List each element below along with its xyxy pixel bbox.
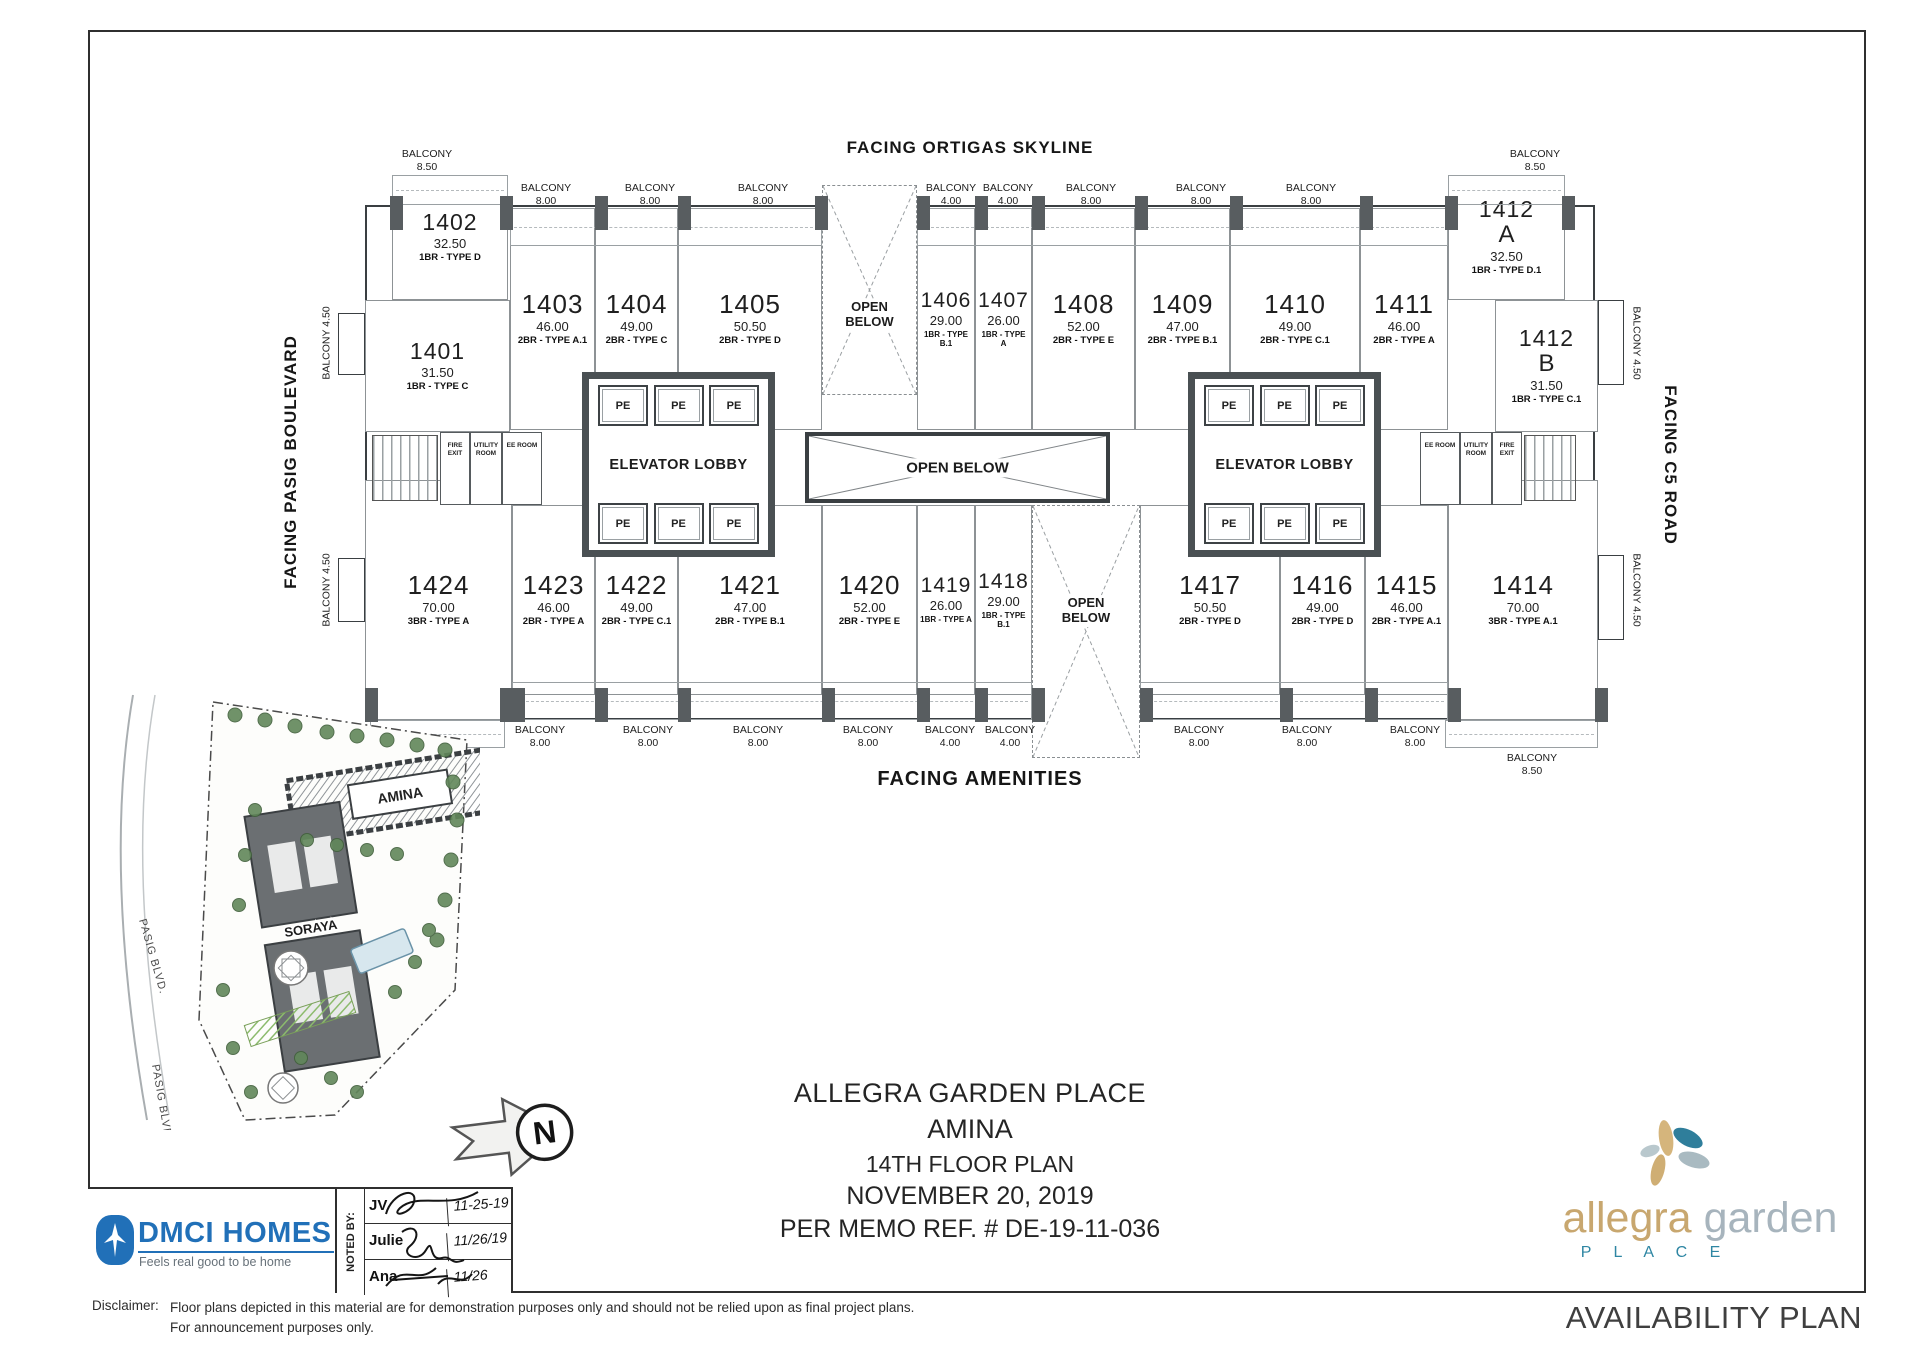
x-cross — [823, 186, 916, 394]
unit-area: 52.00 — [1067, 319, 1100, 334]
balcony-strip — [510, 208, 822, 246]
balcony-label: BALCONY8.00 — [606, 724, 690, 749]
balcony-text: BALCONY — [1066, 182, 1116, 194]
elevator-pe: PE — [654, 385, 704, 426]
unit-number: 1414 — [1492, 572, 1554, 598]
facing-label-bottom: FACING AMENITIES — [680, 768, 1280, 791]
memo-reference: PER MEMO REF. # DE-19-11-036 — [660, 1215, 1280, 1244]
elevator-pe: PE — [654, 503, 704, 544]
unit-number: 1411 — [1374, 291, 1434, 317]
unit-type: 1BR - TYPE A — [918, 615, 974, 624]
balcony-protrusion-right-2 — [1598, 555, 1624, 640]
balcony-label: BALCONY8.50 — [1490, 752, 1574, 777]
unit-number: 1401 — [410, 340, 465, 363]
balcony-protrusion-left-1 — [338, 313, 365, 375]
open-below-label: OPEN BELOW — [902, 458, 1013, 477]
balcony-value: 4.00 — [968, 737, 1052, 750]
signatory-date: 11/26/19 — [446, 1229, 512, 1261]
unit-number: 1417 — [1179, 572, 1241, 598]
balcony-label: BALCONY8.00 — [826, 724, 910, 749]
unit-number: 1415 — [1376, 572, 1438, 598]
balcony-label: BALCONY8.00 — [498, 724, 582, 749]
disclaimer-text: Floor plans depicted in this material ar… — [170, 1298, 1150, 1337]
unit-type: 3BR - TYPE A.1 — [1486, 617, 1559, 628]
brand-place: P L A C E — [1570, 1244, 1740, 1262]
x-cross — [1033, 506, 1139, 757]
balcony-text: BALCONY 4.50 — [1630, 553, 1642, 626]
balcony-strip — [917, 208, 1448, 246]
road-line — [143, 695, 169, 1115]
balcony-label: BALCONY 4.50 — [1630, 306, 1643, 379]
unit-type: 2BR - TYPE A — [521, 617, 586, 628]
signatory-date: 11/26 — [446, 1264, 512, 1296]
balcony-strip — [512, 682, 1032, 720]
balcony-value: 4.00 — [966, 195, 1050, 208]
unit-1418: 1418 29.00 1BR - TYPE B.1 — [975, 505, 1032, 695]
unit-number: 1424 — [408, 572, 470, 598]
unit-area: 47.00 — [1166, 319, 1199, 334]
plaza-circle — [268, 1073, 298, 1103]
balcony-label: BALCONY8.00 — [1265, 724, 1349, 749]
balcony-strip — [392, 175, 508, 205]
balcony-label: BALCONY 4.50 — [1630, 553, 1643, 626]
elevator-row: PE PE PE — [1204, 385, 1365, 426]
floor-plan-title: 14TH FLOOR PLAN — [660, 1151, 1280, 1178]
column-blocks-bottom — [500, 688, 513, 722]
balcony-strip — [1140, 682, 1448, 720]
disclaimer-line-1: Floor plans depicted in this material ar… — [170, 1298, 1150, 1318]
balcony-text: BALCONY — [983, 182, 1033, 194]
unit-1424: 1424 70.00 3BR - TYPE A — [365, 480, 512, 720]
brand-garden: garden — [1704, 1194, 1838, 1242]
dmci-logo-box: DMCI HOMES Feels real good to be home — [88, 1187, 337, 1293]
balcony-text: BALCONY — [1507, 752, 1557, 764]
balcony-label: BALCONY8.00 — [1373, 724, 1457, 749]
balcony-text: BALCONY — [733, 724, 783, 736]
balcony-value: 8.00 — [1159, 195, 1243, 208]
title-block-text: ALLEGRA GARDEN PLACE AMINA 14TH FLOOR PL… — [660, 1078, 1280, 1244]
road-label-2: PASIG BLVD. — [149, 1063, 174, 1130]
plaza-circle — [274, 951, 308, 985]
project-name: ALLEGRA GARDEN PLACE — [660, 1078, 1280, 1109]
balcony-label: BALCONY8.00 — [1049, 182, 1133, 207]
balcony-label: BALCONY8.00 — [504, 182, 588, 207]
unit-area: 49.00 — [1279, 319, 1312, 334]
unit-area: 29.00 — [930, 313, 963, 328]
unit-1401: 1401 31.50 1BR - TYPE C — [365, 300, 510, 432]
unit-1419: 1419 26.00 1BR - TYPE A — [917, 505, 975, 695]
brand-allegra: allegra — [1563, 1194, 1692, 1242]
balcony-label: BALCONY8.00 — [1159, 182, 1243, 207]
availability-plan-title: AVAILABILITY PLAN — [1566, 1300, 1862, 1336]
unit-number: 1402 — [422, 211, 477, 234]
balcony-label: BALCONY8.00 — [1269, 182, 1353, 207]
unit-area: 70.00 — [422, 600, 455, 615]
north-arrow: N — [441, 1060, 587, 1197]
open-below-top: OPEN BELOW — [822, 185, 917, 395]
balcony-text: BALCONY — [1510, 148, 1560, 160]
dmci-wordmark: DMCI HOMES — [138, 1217, 332, 1250]
balcony-strip — [1445, 720, 1598, 748]
elevator-lobby-label: ELEVATOR LOBBY — [1215, 457, 1353, 473]
unit-area: 26.00 — [930, 598, 963, 613]
elevator-pe: PE — [1315, 503, 1365, 544]
unit-number: 1409 — [1152, 291, 1214, 317]
balcony-protrusion-left-2 — [338, 558, 365, 622]
unit-type: 2BR - TYPE B.1 — [1146, 336, 1220, 347]
elevator-row: PE PE PE — [1204, 503, 1365, 544]
brand-wordmark: allegra garden — [1545, 1194, 1855, 1243]
balcony-value: 8.50 — [1490, 765, 1574, 778]
elevator-pe: PE — [709, 503, 759, 544]
allegra-flower-icon — [1630, 1118, 1720, 1190]
balcony-text: BALCONY 4.50 — [321, 306, 333, 379]
unit-type: 2BR - TYPE A.1 — [516, 336, 589, 347]
disclaimer-label: Disclaimer: — [92, 1298, 159, 1313]
unit-type: 1BR - TYPE C.1 — [1510, 395, 1584, 406]
unit-area: 46.00 — [1388, 319, 1421, 334]
unit-1420: 1420 52.00 2BR - TYPE E — [822, 505, 917, 695]
unit-type: 2BR - TYPE E — [1051, 336, 1116, 347]
balcony-label: BALCONY8.00 — [721, 182, 805, 207]
signatory-name: Ana — [369, 1268, 397, 1285]
balcony-text: BALCONY 4.50 — [1630, 306, 1642, 379]
unit-number: 1421 — [719, 572, 781, 598]
unit-number: 1416 — [1292, 572, 1354, 598]
unit-area: 46.00 — [1390, 600, 1423, 615]
balcony-value: 8.50 — [1493, 161, 1577, 174]
elevator-lobby-right: PE PE PE ELEVATOR LOBBY PE PE PE — [1188, 372, 1381, 557]
stairs-right — [1524, 435, 1576, 501]
balcony-text: BALCONY — [402, 148, 452, 160]
petal-gold-bottom — [1648, 1153, 1668, 1187]
unit-number: 1420 — [839, 572, 901, 598]
utility-room-right: UTILITY ROOM — [1460, 432, 1492, 505]
balcony-value: 8.00 — [498, 737, 582, 750]
unit-number: 1412 — [1519, 327, 1574, 350]
unit-area: 49.00 — [1306, 600, 1339, 615]
facing-label-top: FACING ORTIGAS SKYLINE — [670, 138, 1270, 158]
balcony-label: BALCONY4.00 — [968, 724, 1052, 749]
balcony-protrusion-right-1 — [1598, 300, 1624, 385]
balcony-value: 8.00 — [1373, 737, 1457, 750]
balcony-value: 8.00 — [826, 737, 910, 750]
open-below-bottom: OPEN BELOW — [1032, 505, 1140, 758]
unit-suffix: A — [1498, 223, 1514, 247]
facing-label-left: FACING PASIG BOULEVARD — [281, 335, 301, 589]
signatory-row: JV 11-25-19 — [365, 1189, 513, 1224]
unit-number: 1407 — [978, 290, 1029, 311]
balcony-text: BALCONY — [515, 724, 565, 736]
elevator-lobby-label: ELEVATOR LOBBY — [609, 457, 747, 473]
jet-icon — [102, 1221, 128, 1259]
balcony-text: BALCONY — [985, 724, 1035, 736]
balcony-value: 8.00 — [716, 737, 800, 750]
balcony-text: BALCONY — [1282, 724, 1332, 736]
unit-number: 1422 — [606, 572, 668, 598]
dmci-tagline: Feels real good to be home — [139, 1255, 291, 1269]
balcony-label: BALCONY8.50 — [385, 148, 469, 173]
balcony-value: 8.00 — [608, 195, 692, 208]
balcony-label: BALCONY8.00 — [716, 724, 800, 749]
dmci-rule — [138, 1251, 334, 1253]
unit-area: 50.50 — [1194, 600, 1227, 615]
balcony-text: BALCONY — [1174, 724, 1224, 736]
balcony-value: 8.00 — [1269, 195, 1353, 208]
balcony-label: BALCONY8.00 — [608, 182, 692, 207]
unit-area: 31.50 — [421, 365, 454, 380]
balcony-text: BALCONY — [623, 724, 673, 736]
noted-by-column: NOTED BY: — [337, 1189, 365, 1295]
fire-exit-right: FIRE EXIT — [1492, 432, 1522, 505]
ee-room-left: EE ROOM — [502, 432, 542, 505]
unit-number: 1410 — [1264, 291, 1326, 317]
building-name: AMINA — [660, 1114, 1280, 1145]
dmci-logo-icon — [96, 1215, 134, 1265]
unit-area: 31.50 — [1530, 378, 1563, 393]
unit-type: 1BR - TYPE D.1 — [1470, 266, 1544, 277]
unit-number: 1404 — [606, 291, 668, 317]
unit-number: 1423 — [523, 572, 585, 598]
unit-type: 2BR - TYPE D — [1177, 617, 1243, 628]
unit-1412B: 1412 B 31.50 1BR - TYPE C.1 — [1495, 300, 1598, 432]
unit-type: 1BR - TYPE C — [405, 382, 471, 393]
elevator-pe: PE — [1260, 385, 1310, 426]
unit-type: 3BR - TYPE A — [406, 617, 471, 628]
unit-number: 1408 — [1053, 291, 1115, 317]
unit-suffix: B — [1538, 352, 1554, 376]
unit-type: 2BR - TYPE C.1 — [600, 617, 674, 628]
unit-area: 46.00 — [537, 600, 570, 615]
signatory-row: Ana 11/26 — [365, 1260, 513, 1295]
balcony-value: 8.50 — [385, 161, 469, 174]
petal-teal — [1670, 1123, 1706, 1152]
disclaimer-line-2: For announcement purposes only. — [170, 1318, 1150, 1338]
unit-number: 1418 — [978, 571, 1029, 592]
elevator-pe: PE — [1204, 385, 1254, 426]
unit-type: 2BR - TYPE A — [1371, 336, 1436, 347]
unit-area: 26.00 — [987, 313, 1020, 328]
unit-type: 2BR - TYPE C — [604, 336, 670, 347]
balcony-text: BALCONY — [625, 182, 675, 194]
unit-type: 1BR - TYPE D — [417, 253, 483, 264]
elevator-pe: PE — [1315, 385, 1365, 426]
unit-area: 32.50 — [1490, 249, 1523, 264]
balcony-text: BALCONY — [1176, 182, 1226, 194]
balcony-value: 8.00 — [606, 737, 690, 750]
unit-area: 49.00 — [620, 600, 653, 615]
balcony-value: 8.00 — [1049, 195, 1133, 208]
unit-number: 1419 — [921, 575, 972, 596]
unit-area: 29.00 — [987, 594, 1020, 609]
unit-area: 32.50 — [434, 236, 467, 251]
unit-area: 46.00 — [536, 319, 569, 334]
balcony-text: BALCONY — [738, 182, 788, 194]
elevator-pe: PE — [709, 385, 759, 426]
noted-by-table: NOTED BY: JV 11-25-19 Julie 11/26/19 Ana… — [337, 1187, 513, 1293]
unit-type: 1BR - TYPE B.1 — [918, 330, 974, 348]
balcony-label: BALCONY4.00 — [966, 182, 1050, 207]
utility-room-left: UTILITY ROOM — [470, 432, 502, 505]
unit-type: 1BR - TYPE B.1 — [976, 611, 1031, 629]
signatory-name: Julie — [369, 1232, 403, 1249]
elevator-pe: PE — [1260, 503, 1310, 544]
open-below-label: OPEN BELOW — [841, 299, 899, 331]
unit-number: 1406 — [921, 290, 972, 311]
unit-area: 70.00 — [1507, 600, 1540, 615]
balcony-label: BALCONY8.00 — [1157, 724, 1241, 749]
unit-type: 2BR - TYPE D — [1290, 617, 1356, 628]
petal-gray — [1677, 1148, 1712, 1171]
elevator-row: PE PE PE — [598, 385, 759, 426]
open-below-center: OPEN BELOW — [805, 432, 1110, 503]
unit-1414: 1414 70.00 3BR - TYPE A.1 — [1448, 480, 1598, 720]
balcony-value: 8.00 — [721, 195, 805, 208]
noted-by-label: NOTED BY: — [345, 1212, 357, 1272]
site-plan-inset: PASIG BLVD. PASIG BLVD. AMINA SORAYA — [95, 690, 480, 1130]
signatory-row: Julie 11/26/19 — [365, 1224, 513, 1259]
unit-area: 49.00 — [620, 319, 653, 334]
signatory-date: 11-25-19 — [446, 1194, 512, 1226]
availability-plan-sheet: 1402 32.50 1BR - TYPE D 1401 31.50 1BR -… — [0, 0, 1920, 1357]
balcony-value: 8.00 — [1157, 737, 1241, 750]
balcony-value: 8.00 — [504, 195, 588, 208]
road-line — [121, 695, 147, 1120]
unit-number: 1403 — [522, 291, 584, 317]
plan-date: NOVEMBER 20, 2019 — [660, 1182, 1280, 1211]
elevator-pe: PE — [598, 385, 648, 426]
unit-type: 2BR - TYPE E — [837, 617, 902, 628]
unit-type: 2BR - TYPE B.1 — [713, 617, 787, 628]
unit-number: 1405 — [719, 291, 781, 317]
elevator-row: PE PE PE — [598, 503, 759, 544]
fire-exit-left: FIRE EXIT — [440, 432, 470, 505]
stairs-left — [372, 435, 438, 501]
petal-gold-top — [1657, 1119, 1676, 1157]
balcony-label: BALCONY 4.50 — [321, 306, 334, 379]
elevator-pe: PE — [1204, 503, 1254, 544]
open-below-label: OPEN BELOW — [1057, 595, 1115, 627]
balcony-label: BALCONY8.50 — [1493, 148, 1577, 173]
balcony-text: BALCONY — [843, 724, 893, 736]
balcony-text: BALCONY — [521, 182, 571, 194]
balcony-text: BALCONY 4.50 — [321, 553, 333, 626]
unit-type: 2BR - TYPE D — [717, 336, 783, 347]
unit-area: 50.50 — [734, 319, 767, 334]
balcony-value: 8.00 — [1265, 737, 1349, 750]
elevator-lobby-left: PE PE PE ELEVATOR LOBBY PE PE PE — [582, 372, 775, 557]
ee-room-right: EE ROOM — [1420, 432, 1460, 505]
balcony-strip — [1448, 175, 1565, 205]
north-letter: N — [531, 1113, 558, 1152]
unit-type: 1BR - TYPE A — [976, 330, 1031, 348]
signatory-name: JV — [369, 1197, 387, 1214]
elevator-pe: PE — [598, 503, 648, 544]
unit-area: 47.00 — [734, 600, 767, 615]
unit-area: 52.00 — [853, 600, 886, 615]
unit-type: 2BR - TYPE C.1 — [1258, 336, 1332, 347]
road-label-1: PASIG BLVD. — [136, 918, 169, 996]
balcony-text: BALCONY — [1286, 182, 1336, 194]
balcony-text: BALCONY — [1390, 724, 1440, 736]
balcony-label: BALCONY 4.50 — [321, 553, 334, 626]
facing-label-right: FACING C5 ROAD — [1660, 385, 1680, 544]
unit-type: 2BR - TYPE A.1 — [1370, 617, 1443, 628]
